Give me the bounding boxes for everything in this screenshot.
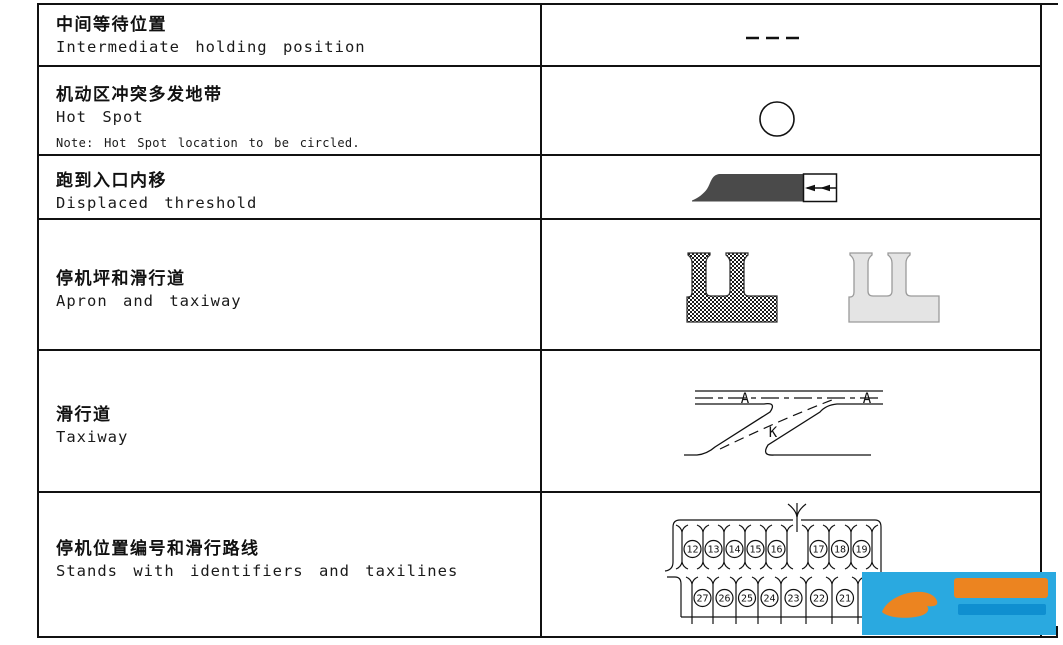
label-en: Stands with identifiers and taxilines [56, 561, 458, 581]
taxiway-junction-icon: A A K [670, 385, 890, 477]
chart-legend-page: 中间等待位置 Intermediate holding position 机动区… [0, 0, 1063, 645]
row-hot-spot-text: 机动区冲突多发地带 Hot Spot Note: Hot Spot locati… [56, 85, 360, 150]
symbol-apron-hatched [686, 251, 778, 323]
stand-number: 19 [855, 545, 867, 556]
stand-number: 27 [696, 594, 708, 605]
label-en: Apron and taxiway [56, 291, 242, 311]
label-en: Intermediate holding position [56, 37, 366, 57]
label-zh: 滑行道 [56, 405, 128, 425]
taxiway-label-k: K [769, 425, 778, 441]
stand-number: 24 [763, 594, 775, 605]
stand-number: 16 [770, 545, 782, 556]
logo-text-block-blue [958, 604, 1046, 615]
row-intermediate-holding-text: 中间等待位置 Intermediate holding position [56, 15, 366, 57]
logo-text-block-orange [954, 578, 1048, 598]
apron-hatched-icon [686, 251, 778, 323]
table-border-top [37, 3, 1058, 5]
border-right-stub [1056, 626, 1058, 636]
label-zh: 停机位置编号和滑行路线 [56, 539, 458, 559]
stand-number: 18 [834, 545, 846, 556]
symbol-displaced-threshold [688, 170, 848, 206]
table-border-bottom [37, 636, 1058, 638]
stand-number: 13 [707, 545, 719, 556]
label-en: Hot Spot [56, 107, 360, 127]
row-stands-text: 停机位置编号和滑行路线 Stands with identifiers and … [56, 539, 458, 581]
stand-number: 12 [686, 545, 698, 556]
stand-number: 25 [741, 594, 753, 605]
label-zh: 机动区冲突多发地带 [56, 85, 360, 105]
label-en: Displaced threshold [56, 193, 257, 213]
stand-number: 22 [813, 594, 825, 605]
label-zh: 停机坪和滑行道 [56, 269, 242, 289]
label-zh: 中间等待位置 [56, 15, 366, 35]
stand-number: 26 [718, 594, 730, 605]
stand-number: 21 [839, 594, 851, 605]
symbol-taxiway-junction: A A K [670, 385, 890, 477]
watermark-logo-graphic [862, 572, 1056, 635]
row-taxiway-text: 滑行道 Taxiway [56, 405, 128, 447]
dashed-line-icon [746, 35, 804, 41]
watermark-logo [862, 572, 1056, 635]
table-border-left [37, 3, 39, 638]
column-divider [540, 3, 542, 636]
hot-spot-note: Note: Hot Spot location to be circled. [56, 136, 360, 150]
taxiway-label-a2: A [863, 391, 872, 407]
stand-number: 15 [749, 545, 761, 556]
label-zh: 跑到入口内移 [56, 171, 257, 191]
stand-number: 17 [812, 545, 824, 556]
row-displaced-threshold-text: 跑到入口内移 Displaced threshold [56, 171, 257, 213]
stand-number: 23 [787, 594, 799, 605]
hot-spot-circle-icon [758, 100, 796, 138]
stand-number: 14 [728, 545, 740, 556]
symbol-intermediate-holding [746, 35, 804, 41]
taxiway-label-a1: A [741, 391, 750, 407]
table-border-right [1040, 3, 1042, 636]
label-en: Taxiway [56, 427, 128, 447]
symbol-hot-spot [758, 100, 796, 138]
apron-gray-icon [848, 251, 940, 323]
row-apron-taxiway-text: 停机坪和滑行道 Apron and taxiway [56, 269, 242, 311]
displaced-threshold-icon [688, 170, 848, 206]
symbol-apron-gray [848, 251, 940, 323]
